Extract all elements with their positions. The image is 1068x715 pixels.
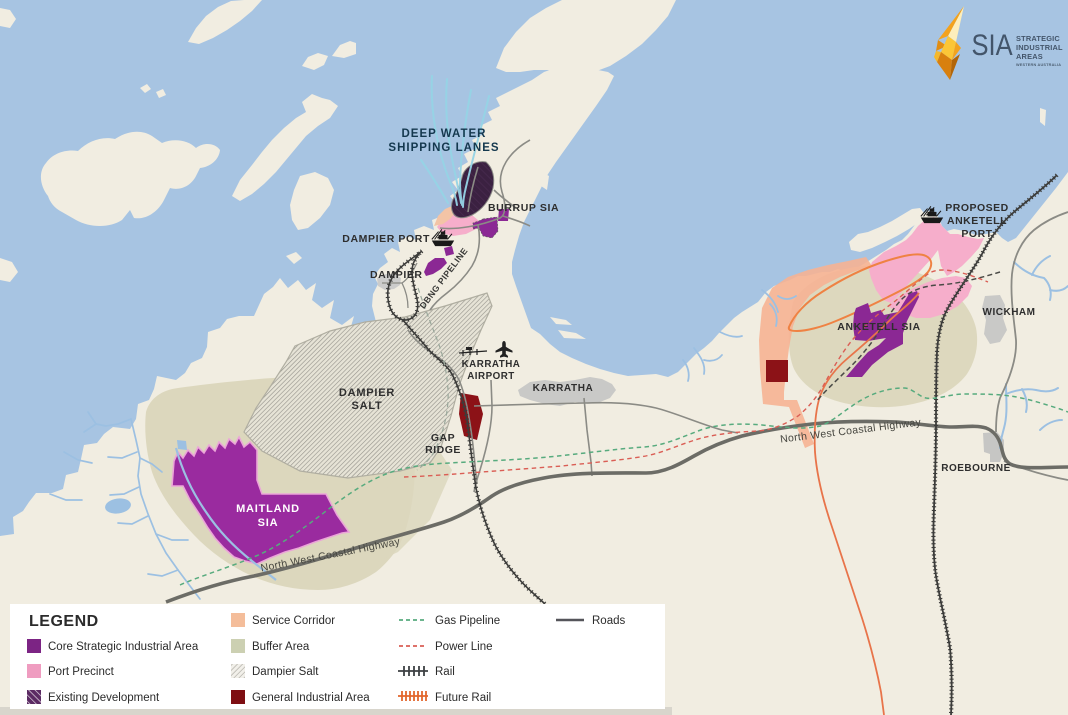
svg-text:SIA: SIA	[258, 517, 279, 529]
svg-text:DAMPIER: DAMPIER	[370, 269, 423, 281]
svg-text:DAMPIER PORT: DAMPIER PORT	[342, 233, 430, 245]
svg-text:BURRUP SIA: BURRUP SIA	[488, 202, 559, 214]
svg-text:KARRATHA: KARRATHA	[462, 359, 521, 370]
svg-text:Power Line: Power Line	[435, 641, 493, 653]
svg-text:ROEBOURNE: ROEBOURNE	[941, 463, 1011, 474]
svg-text:Dampier Salt: Dampier Salt	[252, 666, 319, 678]
svg-text:SALT: SALT	[351, 400, 382, 412]
svg-text:KARRATHA: KARRATHA	[533, 383, 594, 394]
svg-text:INDUSTRIAL: INDUSTRIAL	[1016, 43, 1063, 52]
svg-text:Buffer Area: Buffer Area	[252, 641, 310, 653]
svg-text:Future Rail: Future Rail	[435, 692, 491, 704]
svg-text:SIA: SIA	[972, 28, 1013, 61]
svg-text:AREAS: AREAS	[1016, 52, 1043, 61]
svg-text:DEEP WATER: DEEP WATER	[402, 128, 487, 140]
svg-text:STRATEGIC: STRATEGIC	[1016, 34, 1060, 43]
svg-text:AIRPORT: AIRPORT	[467, 371, 515, 382]
svg-text:LEGEND: LEGEND	[29, 613, 99, 630]
svg-text:Port Precinct: Port Precinct	[48, 666, 115, 678]
svg-text:PORT: PORT	[961, 228, 992, 240]
svg-text:RIDGE: RIDGE	[425, 444, 461, 456]
svg-text:Core Strategic Industrial Area: Core Strategic Industrial Area	[48, 641, 199, 653]
svg-text:MAITLAND: MAITLAND	[236, 503, 300, 515]
svg-text:WICKHAM: WICKHAM	[983, 307, 1036, 318]
svg-text:ANKETELL SIA: ANKETELL SIA	[837, 321, 920, 333]
svg-text:GAP: GAP	[431, 432, 455, 444]
svg-text:PROPOSED: PROPOSED	[945, 202, 1009, 214]
svg-text:Rail: Rail	[435, 666, 455, 678]
svg-text:Gas Pipeline: Gas Pipeline	[435, 615, 500, 627]
svg-text:DAMPIER: DAMPIER	[339, 387, 395, 399]
svg-text:WESTERN AUSTRALIA: WESTERN AUSTRALIA	[1016, 63, 1061, 67]
svg-text:General Industrial Area: General Industrial Area	[252, 692, 370, 704]
svg-text:Existing Development: Existing Development	[48, 692, 160, 704]
svg-text:SHIPPING LANES: SHIPPING LANES	[388, 142, 499, 154]
svg-text:ANKETELL: ANKETELL	[947, 215, 1007, 227]
svg-text:Roads: Roads	[592, 615, 625, 627]
svg-text:Service Corridor: Service Corridor	[252, 615, 335, 627]
